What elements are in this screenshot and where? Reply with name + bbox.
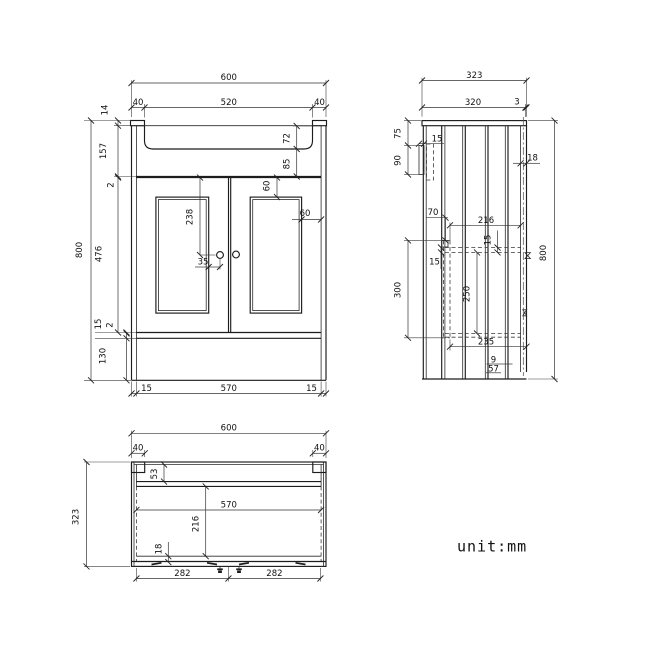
top-trim-right (313, 121, 327, 126)
dim-front-door-height: 476 (95, 246, 105, 262)
dim-side-back-rail: 18 (527, 154, 538, 164)
plan-object-lines (132, 462, 327, 573)
dim-front-basin-zone: 157 (99, 143, 109, 159)
dim-side-bracket-offset: 75 (394, 128, 404, 139)
right-door-panel (250, 197, 301, 313)
dim-plan-front-thickness: 18 (154, 544, 164, 555)
dim-front-handle-inset: 35 (198, 258, 209, 268)
dim-side-overall-height: 800 (539, 245, 549, 261)
dim-front-base-left: 15 (141, 384, 152, 394)
hinge-mark (207, 563, 217, 565)
right-door-knob (233, 251, 240, 258)
dim-front-base-width: 570 (221, 384, 237, 394)
unit-note: unit:mm (457, 538, 527, 556)
corner-post-left (132, 462, 145, 473)
left-door-knob (217, 252, 224, 259)
dim-plan-corner-right: 40 (314, 444, 325, 454)
dim-side-rail-thickness-right: 15 (484, 235, 494, 246)
dim-plan-front-rail-offset: 53 (150, 469, 160, 480)
plan-knob-left (217, 566, 223, 573)
dim-front-basin-opening: 520 (221, 98, 237, 108)
dim-front-bottom-gap: 2 (106, 322, 116, 327)
plan-view: 600 40 40 53 570 216 18 (72, 424, 327, 582)
dim-front-panel-top-inset: 60 (263, 181, 273, 192)
hidden-bracket (427, 144, 434, 180)
corner-post-right (313, 462, 326, 473)
dim-front-basin-to-doors: 85 (283, 159, 293, 170)
top-trim-left (131, 121, 145, 126)
dim-plan-door-left: 282 (174, 569, 190, 579)
drawing-page: { "unit_note": "unit:mm", "front_view": … (0, 0, 650, 650)
plan-dimensions: 600 40 40 53 570 216 18 (72, 424, 327, 582)
front-dimensions: 600 40 520 40 14 157 2 (75, 73, 326, 397)
hinge-mark (152, 563, 162, 565)
dim-front-basin-depth: 72 (283, 133, 293, 144)
dim-plan-door-right: 282 (266, 569, 282, 579)
dim-front-base-right: 15 (306, 384, 317, 394)
dim-front-margin-left: 40 (133, 98, 144, 108)
plan-knob-right (236, 566, 242, 573)
dim-front-panel-side-inset: 60 (300, 209, 311, 219)
dim-plan-corner-left: 40 (133, 444, 144, 454)
side-dimensions: 323 320 3 75 90 15 18 (394, 71, 559, 379)
dim-front-overall-width: 600 (221, 73, 237, 83)
dim-plan-overall-depth: 323 (72, 509, 82, 525)
dim-side-rail-drop: 70 (428, 208, 439, 218)
side-view: 323 320 3 75 90 15 18 (394, 71, 559, 379)
hinge-mark (296, 563, 306, 565)
dim-front-overall-height: 800 (75, 242, 85, 258)
front-object-lines (131, 121, 327, 381)
dim-side-inner-depth: 216 (478, 216, 494, 226)
dim-side-overall-depth: 323 (466, 71, 482, 81)
dim-front-top-gap: 2 (107, 182, 117, 187)
dim-side-shelf-spacing: 250 (463, 286, 473, 302)
dim-plan-inner-depth: 216 (192, 516, 202, 532)
dim-side-bracket-depth: 15 (432, 135, 443, 145)
dim-side-recess-height: 300 (394, 282, 404, 298)
counter-top (422, 121, 527, 126)
dim-side-top-depth: 320 (465, 98, 481, 108)
dim-side-base-depth: 235 (478, 337, 494, 347)
front-view: 600 40 520 40 14 157 2 (75, 73, 327, 397)
side-object-lines (419, 117, 530, 379)
hinge-mark (239, 563, 249, 565)
dim-front-plinth: 130 (99, 348, 109, 364)
dim-front-top-trim: 14 (101, 105, 111, 116)
dim-plan-inner-width: 570 (221, 500, 237, 510)
fastener-icon (525, 253, 530, 259)
dim-plan-overall-width: 600 (221, 424, 237, 434)
dim-side-bracket-height: 90 (394, 155, 404, 166)
dim-side-rail-thickness-left: 15 (429, 258, 440, 268)
dim-front-handle-drop: 238 (186, 209, 196, 225)
dim-front-margin-right: 40 (314, 98, 325, 108)
dim-front-bottom-rail: 15 (94, 319, 104, 330)
dim-side-back-lip: 3 (514, 98, 519, 108)
technical-drawing: 600 40 520 40 14 157 2 (0, 0, 650, 650)
